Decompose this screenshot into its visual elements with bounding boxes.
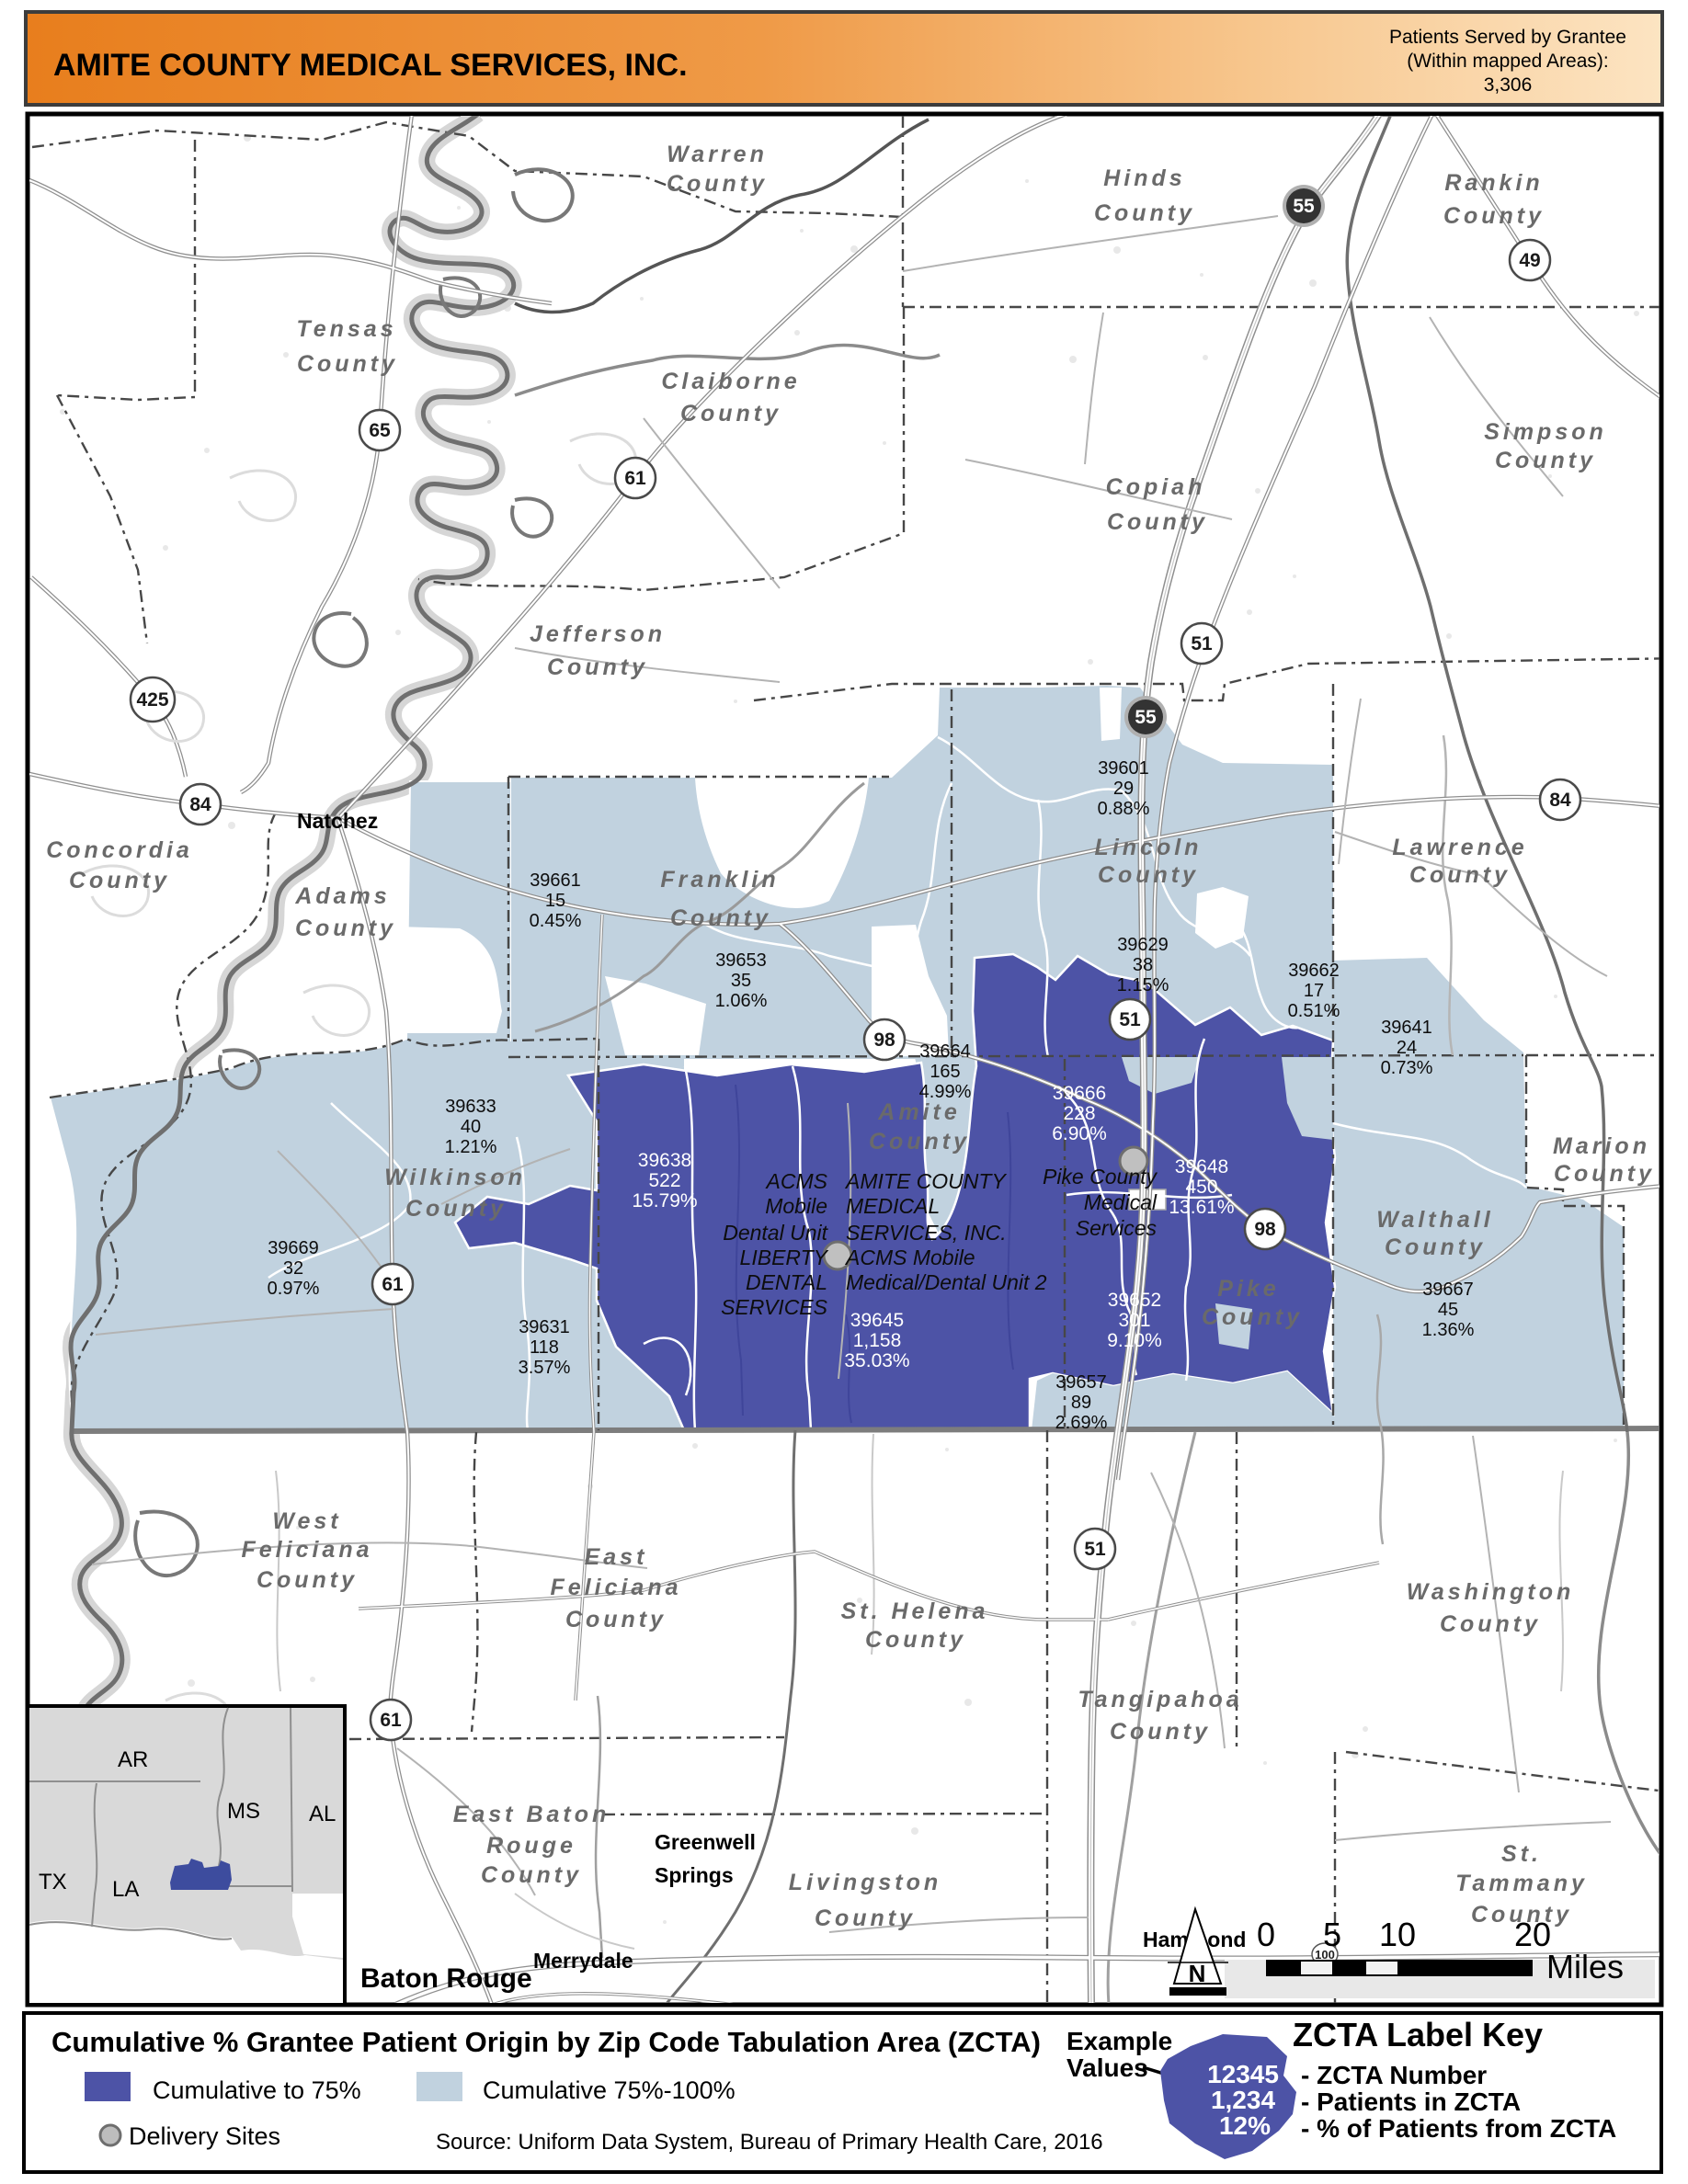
svg-text:TX: TX xyxy=(39,1870,67,1894)
svg-text:Hinds: Hinds xyxy=(1103,165,1185,191)
svg-text:Medical: Medical xyxy=(1084,1190,1158,1214)
svg-text:51: 51 xyxy=(1191,633,1213,654)
svg-text:2.69%: 2.69% xyxy=(1055,1413,1108,1433)
svg-text:County: County xyxy=(295,916,396,941)
svg-text:4.99%: 4.99% xyxy=(919,1082,972,1102)
svg-text:84: 84 xyxy=(1549,790,1571,811)
svg-text:39653: 39653 xyxy=(715,950,767,971)
svg-text:29: 29 xyxy=(1113,779,1134,799)
svg-text:39601: 39601 xyxy=(1098,758,1149,779)
svg-text:East: East xyxy=(585,1544,648,1570)
svg-text:County: County xyxy=(547,654,648,680)
svg-text:39641: 39641 xyxy=(1381,1018,1432,1038)
svg-text:Pike: Pike xyxy=(1217,1276,1279,1302)
svg-text:(Within mapped Areas):: (Within mapped Areas): xyxy=(1407,51,1608,72)
svg-text:Dental Unit: Dental Unit xyxy=(723,1221,828,1245)
svg-text:County: County xyxy=(1110,1719,1211,1745)
svg-text:Medical/Dental Unit 2: Medical/Dental Unit 2 xyxy=(846,1270,1047,1294)
svg-text:39666: 39666 xyxy=(1053,1083,1106,1104)
svg-text:1.21%: 1.21% xyxy=(445,1137,497,1157)
svg-text:East Baton: East Baton xyxy=(453,1802,610,1827)
svg-text:County: County xyxy=(1443,203,1545,229)
svg-text:15.79%: 15.79% xyxy=(632,1190,697,1211)
svg-text:39652: 39652 xyxy=(1108,1290,1161,1311)
svg-text:County: County xyxy=(297,351,398,377)
svg-text:1.06%: 1.06% xyxy=(715,991,768,1011)
svg-text:55: 55 xyxy=(1135,707,1157,728)
svg-text:- ZCTA Number: - ZCTA Number xyxy=(1301,2061,1487,2089)
svg-text:Pike County: Pike County xyxy=(1043,1165,1158,1189)
svg-text:County: County xyxy=(481,1862,582,1888)
svg-text:10: 10 xyxy=(1379,1916,1416,1953)
svg-text:County: County xyxy=(680,401,781,427)
svg-text:39638: 39638 xyxy=(638,1150,691,1171)
svg-text:17: 17 xyxy=(1304,981,1324,1001)
svg-text:39648: 39648 xyxy=(1175,1156,1228,1177)
svg-text:Mobile: Mobile xyxy=(765,1194,827,1218)
svg-text:49: 49 xyxy=(1519,250,1540,271)
svg-text:39664: 39664 xyxy=(919,1041,971,1062)
svg-text:40: 40 xyxy=(461,1117,481,1137)
svg-text:450: 450 xyxy=(1185,1177,1217,1198)
svg-text:39662: 39662 xyxy=(1288,961,1340,981)
svg-text:ACMS: ACMS xyxy=(765,1169,828,1193)
svg-text:County: County xyxy=(1440,1611,1541,1637)
svg-text:39667: 39667 xyxy=(1422,1280,1474,1300)
svg-text:County: County xyxy=(667,171,768,197)
svg-text:39669: 39669 xyxy=(268,1238,319,1258)
svg-text:Delivery Sites: Delivery Sites xyxy=(129,2122,280,2150)
svg-text:39645: 39645 xyxy=(850,1310,904,1331)
svg-text:61: 61 xyxy=(382,1274,404,1295)
svg-text:51: 51 xyxy=(1084,1539,1106,1560)
svg-text:County: County xyxy=(815,1905,916,1931)
svg-text:SERVICES: SERVICES xyxy=(721,1295,828,1319)
svg-text:3,306: 3,306 xyxy=(1484,74,1533,96)
svg-text:Springs: Springs xyxy=(655,1863,734,1887)
svg-text:Rankin: Rankin xyxy=(1444,170,1543,196)
svg-text:0.73%: 0.73% xyxy=(1381,1058,1433,1078)
svg-text:6.90%: 6.90% xyxy=(1052,1123,1107,1144)
svg-text:522: 522 xyxy=(648,1170,680,1191)
svg-text:County: County xyxy=(1107,509,1208,535)
svg-text:- Patients in ZCTA: - Patients in ZCTA xyxy=(1301,2087,1521,2116)
svg-text:County: County xyxy=(869,1129,970,1155)
svg-text:32: 32 xyxy=(283,1258,303,1279)
svg-text:Cumulative 75%-100%: Cumulative 75%-100% xyxy=(483,2076,736,2104)
svg-text:5: 5 xyxy=(1323,1916,1341,1953)
svg-text:1.36%: 1.36% xyxy=(1422,1320,1475,1340)
svg-text:County: County xyxy=(1554,1161,1655,1187)
svg-text:98: 98 xyxy=(1254,1219,1276,1240)
svg-text:County: County xyxy=(1495,448,1596,473)
svg-text:St.: St. xyxy=(1501,1841,1542,1867)
svg-text:35.03%: 35.03% xyxy=(844,1350,909,1371)
svg-text:3.57%: 3.57% xyxy=(519,1358,571,1378)
svg-text:St. Helena: St. Helena xyxy=(841,1598,989,1624)
svg-text:AR: AR xyxy=(118,1747,148,1772)
svg-text:Tangipahoa: Tangipahoa xyxy=(1078,1687,1242,1712)
svg-text:Wilkinson: Wilkinson xyxy=(384,1165,526,1190)
svg-text:MEDICAL: MEDICAL xyxy=(846,1194,940,1218)
svg-text:County: County xyxy=(670,905,771,931)
svg-text:12%: 12% xyxy=(1219,2111,1271,2140)
svg-text:Adams: Adams xyxy=(294,883,390,909)
svg-text:Warren: Warren xyxy=(667,142,768,167)
svg-text:ZCTA Label Key: ZCTA Label Key xyxy=(1293,2016,1543,2053)
svg-text:Marion: Marion xyxy=(1553,1133,1650,1159)
svg-text:38: 38 xyxy=(1133,955,1153,975)
svg-text:Franklin: Franklin xyxy=(660,867,779,893)
svg-text:61: 61 xyxy=(380,1710,402,1731)
svg-text:0.97%: 0.97% xyxy=(268,1279,320,1299)
svg-text:301: 301 xyxy=(1118,1310,1150,1331)
svg-text:Miles: Miles xyxy=(1546,1948,1624,1985)
svg-text:24: 24 xyxy=(1397,1038,1417,1058)
svg-text:MS: MS xyxy=(227,1799,260,1824)
svg-text:9.10%: 9.10% xyxy=(1107,1330,1162,1351)
svg-text:SERVICES, INC.: SERVICES, INC. xyxy=(846,1221,1007,1245)
svg-text:0.51%: 0.51% xyxy=(1288,1001,1340,1021)
svg-text:County: County xyxy=(1202,1304,1303,1330)
svg-text:39633: 39633 xyxy=(445,1097,496,1117)
svg-text:N: N xyxy=(1189,1960,1206,1987)
svg-text:Copiah: Copiah xyxy=(1106,474,1206,500)
svg-text:Tammany: Tammany xyxy=(1455,1871,1588,1896)
svg-text:AL: AL xyxy=(309,1802,336,1826)
svg-text:165: 165 xyxy=(930,1062,960,1082)
svg-text:County: County xyxy=(1409,862,1511,888)
svg-text:Cumulative % Grantee Patient O: Cumulative % Grantee Patient Origin by Z… xyxy=(51,2026,1041,2058)
svg-text:0.88%: 0.88% xyxy=(1098,799,1150,819)
svg-text:LIBERTY: LIBERTY xyxy=(740,1246,829,1269)
svg-text:AMITE COUNTY: AMITE COUNTY xyxy=(844,1169,1007,1193)
svg-text:65: 65 xyxy=(369,420,391,441)
svg-text:Tensas: Tensas xyxy=(296,316,396,342)
svg-text:Lawrence: Lawrence xyxy=(1392,835,1527,860)
svg-text:LA: LA xyxy=(112,1877,139,1902)
svg-text:45: 45 xyxy=(1438,1300,1458,1320)
svg-text:Merrydale: Merrydale xyxy=(533,1949,633,1973)
svg-text:Cumulative to 75%: Cumulative to 75% xyxy=(153,2076,361,2104)
svg-text:Baton Rouge: Baton Rouge xyxy=(360,1963,532,1994)
svg-text:Feliciana: Feliciana xyxy=(551,1575,682,1600)
svg-text:55: 55 xyxy=(1293,196,1315,217)
svg-text:0.45%: 0.45% xyxy=(530,911,582,931)
svg-text:Jefferson: Jefferson xyxy=(530,621,666,647)
svg-text:89: 89 xyxy=(1071,1393,1091,1413)
svg-text:Source: Uniform Data System, B: Source: Uniform Data System, Bureau of P… xyxy=(436,2130,1103,2155)
svg-text:County: County xyxy=(405,1196,507,1222)
svg-text:228: 228 xyxy=(1063,1103,1095,1124)
svg-text:DENTAL: DENTAL xyxy=(746,1270,827,1294)
svg-text:39631: 39631 xyxy=(519,1317,570,1337)
svg-text:0: 0 xyxy=(1257,1916,1275,1953)
svg-text:Simpson: Simpson xyxy=(1484,419,1607,445)
svg-text:West: West xyxy=(272,1508,341,1534)
svg-text:118: 118 xyxy=(530,1337,559,1358)
svg-text:Patients Served by Grantee: Patients Served by Grantee xyxy=(1389,27,1626,48)
svg-text:39661: 39661 xyxy=(530,870,581,891)
svg-text:12345: 12345 xyxy=(1207,2060,1279,2088)
svg-text:39629: 39629 xyxy=(1117,935,1169,955)
svg-text:84: 84 xyxy=(189,794,211,815)
svg-text:AMITE COUNTY MEDICAL SERVICES,: AMITE COUNTY MEDICAL SERVICES, INC. xyxy=(53,48,688,83)
svg-text:- % of Patients from ZCTA: - % of Patients from ZCTA xyxy=(1301,2114,1616,2143)
svg-text:Feliciana: Feliciana xyxy=(242,1537,373,1563)
svg-text:39657: 39657 xyxy=(1055,1372,1107,1393)
svg-text:Amite: Amite xyxy=(877,1099,960,1125)
svg-text:Rouge: Rouge xyxy=(486,1833,576,1859)
svg-text:Natchez: Natchez xyxy=(297,809,378,833)
svg-text:35: 35 xyxy=(731,971,751,991)
svg-text:61: 61 xyxy=(624,468,646,489)
svg-text:425: 425 xyxy=(136,689,168,711)
svg-text:County: County xyxy=(69,868,170,893)
svg-text:ACMS Mobile: ACMS Mobile xyxy=(844,1246,975,1269)
svg-text:13.61%: 13.61% xyxy=(1169,1197,1234,1218)
svg-text:County: County xyxy=(565,1607,667,1632)
svg-text:Greenwell: Greenwell xyxy=(655,1830,756,1854)
svg-text:98: 98 xyxy=(873,1029,895,1051)
svg-text:County: County xyxy=(1094,200,1195,226)
svg-text:County: County xyxy=(1098,862,1199,888)
svg-text:County: County xyxy=(257,1567,358,1593)
svg-text:51: 51 xyxy=(1119,1009,1141,1030)
svg-text:1.15%: 1.15% xyxy=(1117,975,1169,995)
svg-text:Values: Values xyxy=(1066,2053,1148,2082)
svg-text:Lincoln: Lincoln xyxy=(1095,835,1203,860)
svg-text:Concordia: Concordia xyxy=(46,837,193,863)
svg-text:Services: Services xyxy=(1076,1216,1158,1240)
svg-text:15: 15 xyxy=(545,891,565,911)
svg-text:1,234: 1,234 xyxy=(1211,2086,1275,2114)
svg-text:1,158: 1,158 xyxy=(853,1330,902,1351)
svg-text:Washington: Washington xyxy=(1407,1579,1575,1605)
svg-text:County: County xyxy=(1385,1234,1486,1260)
svg-text:Walthall: Walthall xyxy=(1376,1207,1493,1233)
svg-text:Livingston: Livingston xyxy=(789,1870,941,1895)
svg-text:Claiborne: Claiborne xyxy=(661,369,800,394)
svg-text:County: County xyxy=(865,1627,966,1653)
svg-text:Example: Example xyxy=(1066,2027,1172,2055)
